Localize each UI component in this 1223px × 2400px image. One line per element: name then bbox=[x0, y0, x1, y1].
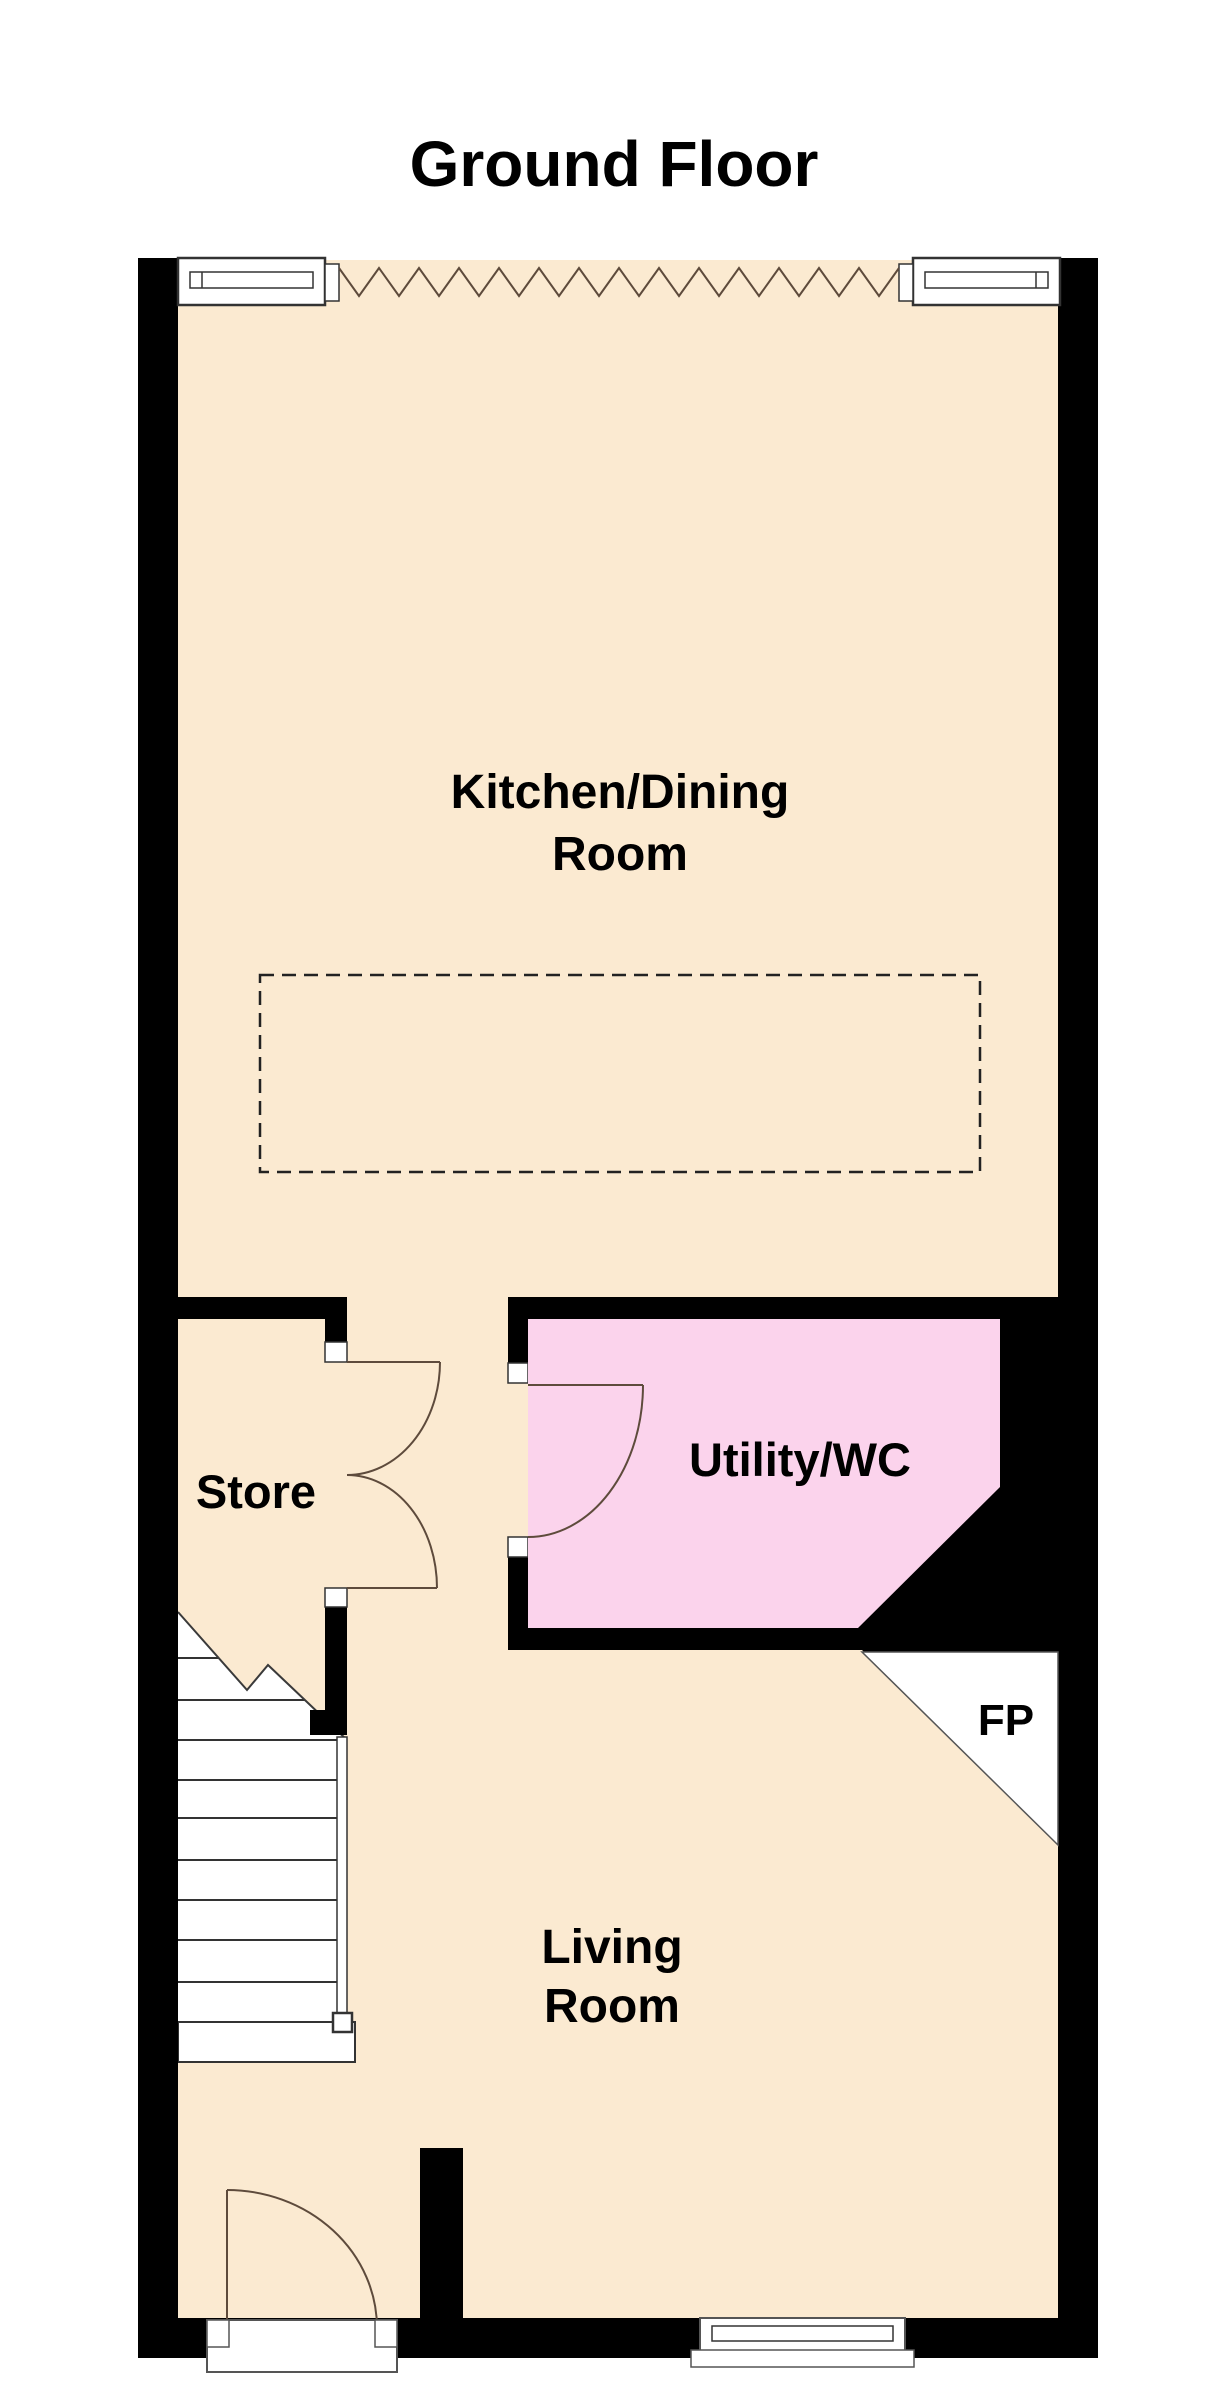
stair-stringer bbox=[337, 1737, 347, 2022]
store-door-jamb-block-top bbox=[325, 1342, 347, 1362]
stair-bottom-step bbox=[178, 2022, 355, 2062]
entrance-threshold bbox=[207, 2320, 397, 2372]
utility-door-jamb-block-top bbox=[508, 1363, 528, 1383]
window-frame-extension bbox=[691, 2350, 914, 2367]
outer-wall-right bbox=[1058, 258, 1098, 2358]
outer-wall-left bbox=[138, 258, 178, 2358]
living-room-label-line1: Living bbox=[541, 1921, 682, 1974]
kitchen-dining-label-line1: Kitchen/Dining bbox=[451, 766, 790, 819]
utility-doorway-opening bbox=[506, 1383, 530, 1537]
window-top-left bbox=[178, 258, 339, 305]
kitchen-dining-label-line2: Room bbox=[552, 828, 688, 881]
entrance-wall-stub bbox=[420, 2148, 463, 2318]
store-label: Store bbox=[196, 1465, 316, 1518]
window-glazing bbox=[712, 2326, 893, 2341]
entrance-jamb-block-left bbox=[207, 2320, 229, 2347]
utility-wc-label: Utility/WC bbox=[689, 1433, 911, 1486]
entrance-threshold-plate bbox=[207, 2320, 397, 2372]
living-room-label-line2: Room bbox=[544, 1980, 680, 2033]
entrance-jamb-block-right bbox=[375, 2320, 397, 2347]
stair-newel-post bbox=[333, 2013, 352, 2032]
floor-plan-page: Ground Floor Kitchen/Dining Room Store U… bbox=[0, 0, 1223, 2400]
store-lower-wall-foot bbox=[310, 1710, 347, 1735]
floor-plan-svg: Ground Floor Kitchen/Dining Room Store U… bbox=[0, 0, 1223, 2400]
fireplace-label: FP bbox=[978, 1696, 1034, 1745]
window-frame-extension bbox=[899, 264, 913, 301]
window-top-right bbox=[899, 258, 1060, 305]
window-bottom bbox=[691, 2318, 914, 2367]
store-door-jamb-block-bottom bbox=[325, 1588, 347, 1607]
window-glazing bbox=[925, 272, 1048, 288]
utility-door-jamb-block-bottom bbox=[508, 1537, 528, 1557]
window-glazing bbox=[190, 272, 313, 288]
window-frame-extension bbox=[325, 264, 339, 301]
store-top-wall bbox=[178, 1297, 347, 1319]
store-jamb-top bbox=[325, 1319, 347, 1343]
page-title: Ground Floor bbox=[410, 128, 819, 200]
